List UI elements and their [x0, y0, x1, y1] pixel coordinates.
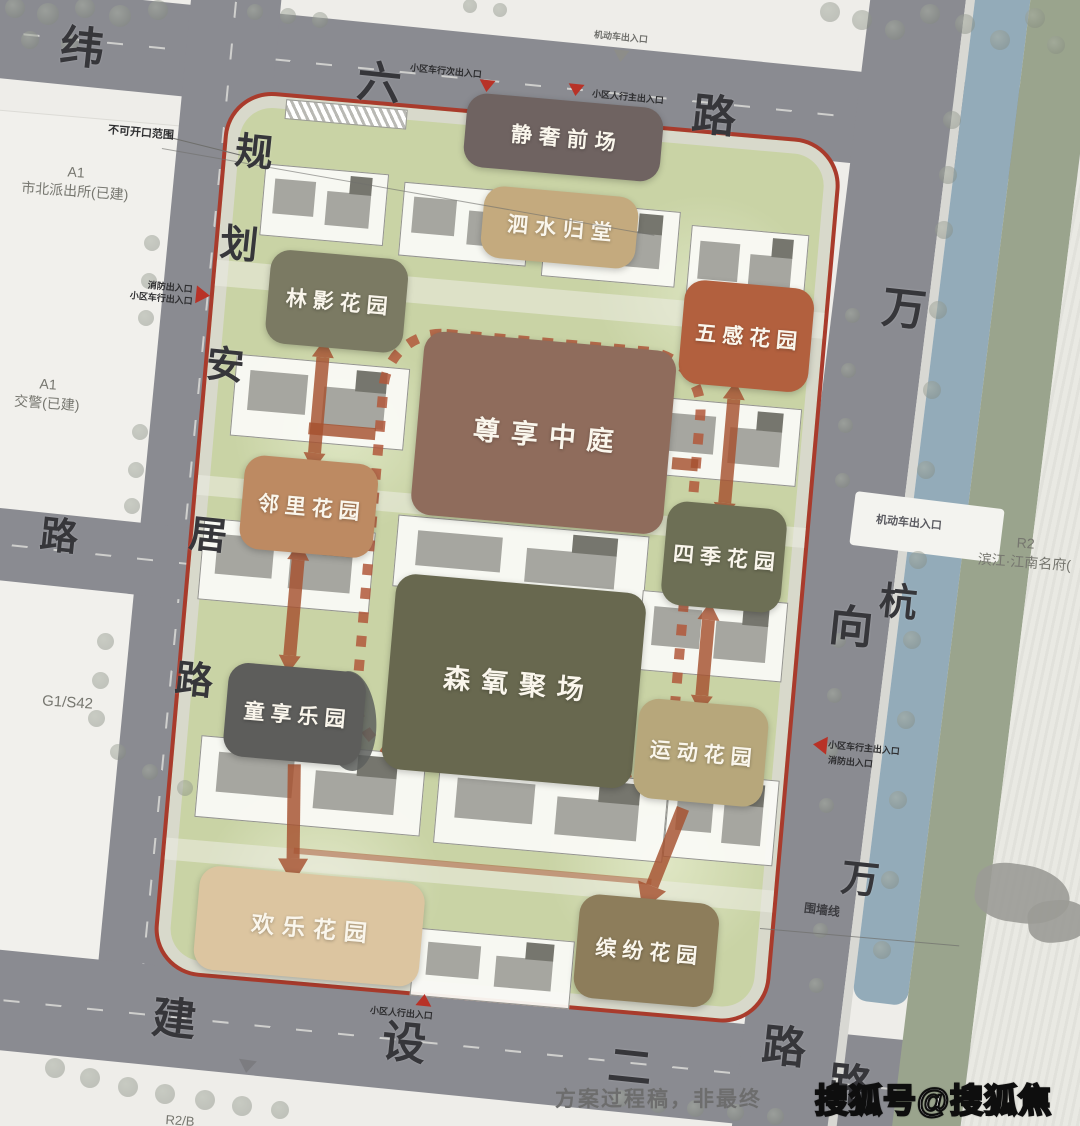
tree-icon — [1047, 36, 1065, 54]
tree-icon — [232, 1096, 252, 1116]
entrance-label-north-motor: 机动车出入口 — [594, 27, 649, 45]
tree-icon — [827, 688, 842, 703]
garden-label-huanle: 欢乐花园 — [192, 865, 426, 988]
tree-icon — [110, 744, 126, 760]
tree-icon — [923, 381, 941, 399]
tree-icon — [148, 0, 168, 20]
garden-label-wugan: 五感花园 — [677, 279, 816, 394]
tree-icon — [155, 1084, 175, 1104]
garden-label-senyang: 森氧聚场 — [380, 573, 647, 790]
tree-icon — [903, 631, 921, 649]
tree-icon — [873, 941, 891, 959]
tree-icon — [138, 310, 154, 326]
road-name-char: 安 — [204, 345, 246, 387]
tree-icon — [247, 4, 263, 20]
tree-icon — [835, 473, 850, 488]
garden-label-linli: 邻里花园 — [238, 454, 380, 559]
parcel-label-r2b: R2/B — [144, 1110, 215, 1126]
tree-icon — [144, 235, 160, 251]
tree-icon — [92, 672, 109, 689]
entrance-marker-north-vehicle-secondary — [478, 79, 495, 93]
draft-watermark: 方案过程稿，非最终 — [555, 1083, 762, 1113]
tree-icon — [838, 418, 853, 433]
garden-label-binfen: 缤纷花园 — [572, 893, 721, 1009]
road-name-char: 路 — [760, 1024, 808, 1072]
parcel-code: R2/B — [144, 1110, 215, 1126]
entrance-marker-south-pedestrian — [415, 993, 432, 1007]
brand-watermark: 搜狐号@搜狐焦点广安站 — [815, 1074, 1080, 1126]
tree-icon — [1025, 8, 1045, 28]
road-name-char: 纬 — [58, 25, 106, 73]
tree-icon — [809, 978, 824, 993]
road-name-char: 万 — [880, 286, 928, 334]
entrance-marker-west-fire — [195, 285, 211, 304]
tree-icon — [889, 791, 907, 809]
tree-icon — [280, 8, 296, 24]
parcel-label-a1-traffic: A1 交警(已建) — [0, 372, 96, 416]
tree-icon — [841, 363, 856, 378]
tree-icon — [132, 424, 148, 440]
garden-label-linying: 林影花园 — [264, 248, 410, 354]
tree-icon — [909, 551, 927, 569]
road-name-char: 万 — [839, 859, 881, 901]
tree-icon — [845, 308, 860, 323]
entrance-marker-east-vehicle-main — [812, 735, 828, 754]
tree-icon — [820, 2, 840, 22]
tree-icon — [885, 20, 905, 40]
tree-icon — [177, 780, 193, 796]
road-name-char: 路 — [38, 516, 80, 558]
road-name-char: 划 — [218, 224, 260, 266]
tree-icon — [128, 462, 144, 478]
tree-icon — [37, 3, 59, 25]
tree-icon — [493, 3, 507, 17]
tree-icon — [819, 798, 834, 813]
tree-icon — [109, 5, 131, 27]
tree-icon — [21, 31, 39, 49]
tree-icon — [990, 30, 1010, 50]
tree-icon — [939, 166, 957, 184]
road-name-char: 规 — [233, 132, 275, 174]
tree-icon — [929, 301, 947, 319]
tree-icon — [271, 1101, 289, 1119]
south-road-marker — [237, 1059, 257, 1074]
road-name-char: 六 — [355, 60, 403, 108]
tree-icon — [767, 1108, 784, 1125]
garden-label-yundong: 运动花园 — [632, 697, 770, 808]
tree-icon — [897, 711, 915, 729]
garden-label-tongxiang: 童享乐园 — [222, 661, 368, 767]
garden-label-zunxiang: 尊享中庭 — [410, 330, 678, 535]
entrance-marker-north-motor — [612, 49, 629, 63]
tree-icon — [943, 111, 961, 129]
road-name-char: 向 — [827, 604, 875, 652]
tree-icon — [142, 764, 158, 780]
parcel-name: 交警(已建) — [14, 393, 80, 414]
tree-icon — [124, 498, 140, 514]
garden-label-siji: 四季花园 — [660, 500, 789, 614]
road-name-char: 建 — [150, 996, 198, 1044]
road-name-char: 路 — [173, 660, 215, 702]
tree-icon — [45, 1058, 65, 1078]
tree-icon — [312, 12, 328, 28]
tree-icon — [955, 14, 975, 34]
tree-icon — [813, 923, 828, 938]
road-name-char: 杭 — [877, 582, 919, 624]
tree-icon — [852, 10, 872, 30]
road-name-char: 设 — [380, 1020, 428, 1068]
road-name-char: 路 — [690, 93, 738, 141]
tree-icon — [881, 871, 899, 889]
tree-icon — [917, 461, 935, 479]
tree-icon — [80, 1068, 100, 1088]
tree-icon — [463, 0, 477, 13]
entrance-marker-north-pedestrian-main — [567, 83, 584, 97]
tree-icon — [97, 633, 114, 650]
tree-icon — [920, 4, 940, 24]
master-plan-canvas: 静奢前场泗水归堂林影花园五感花园尊享中庭邻里花园四季花园森氧聚场童享乐园运动花园… — [0, 0, 1080, 1126]
tree-icon — [935, 221, 953, 239]
road-name-char: 居 — [187, 515, 229, 557]
tree-icon — [118, 1077, 138, 1097]
tree-icon — [195, 1090, 215, 1110]
